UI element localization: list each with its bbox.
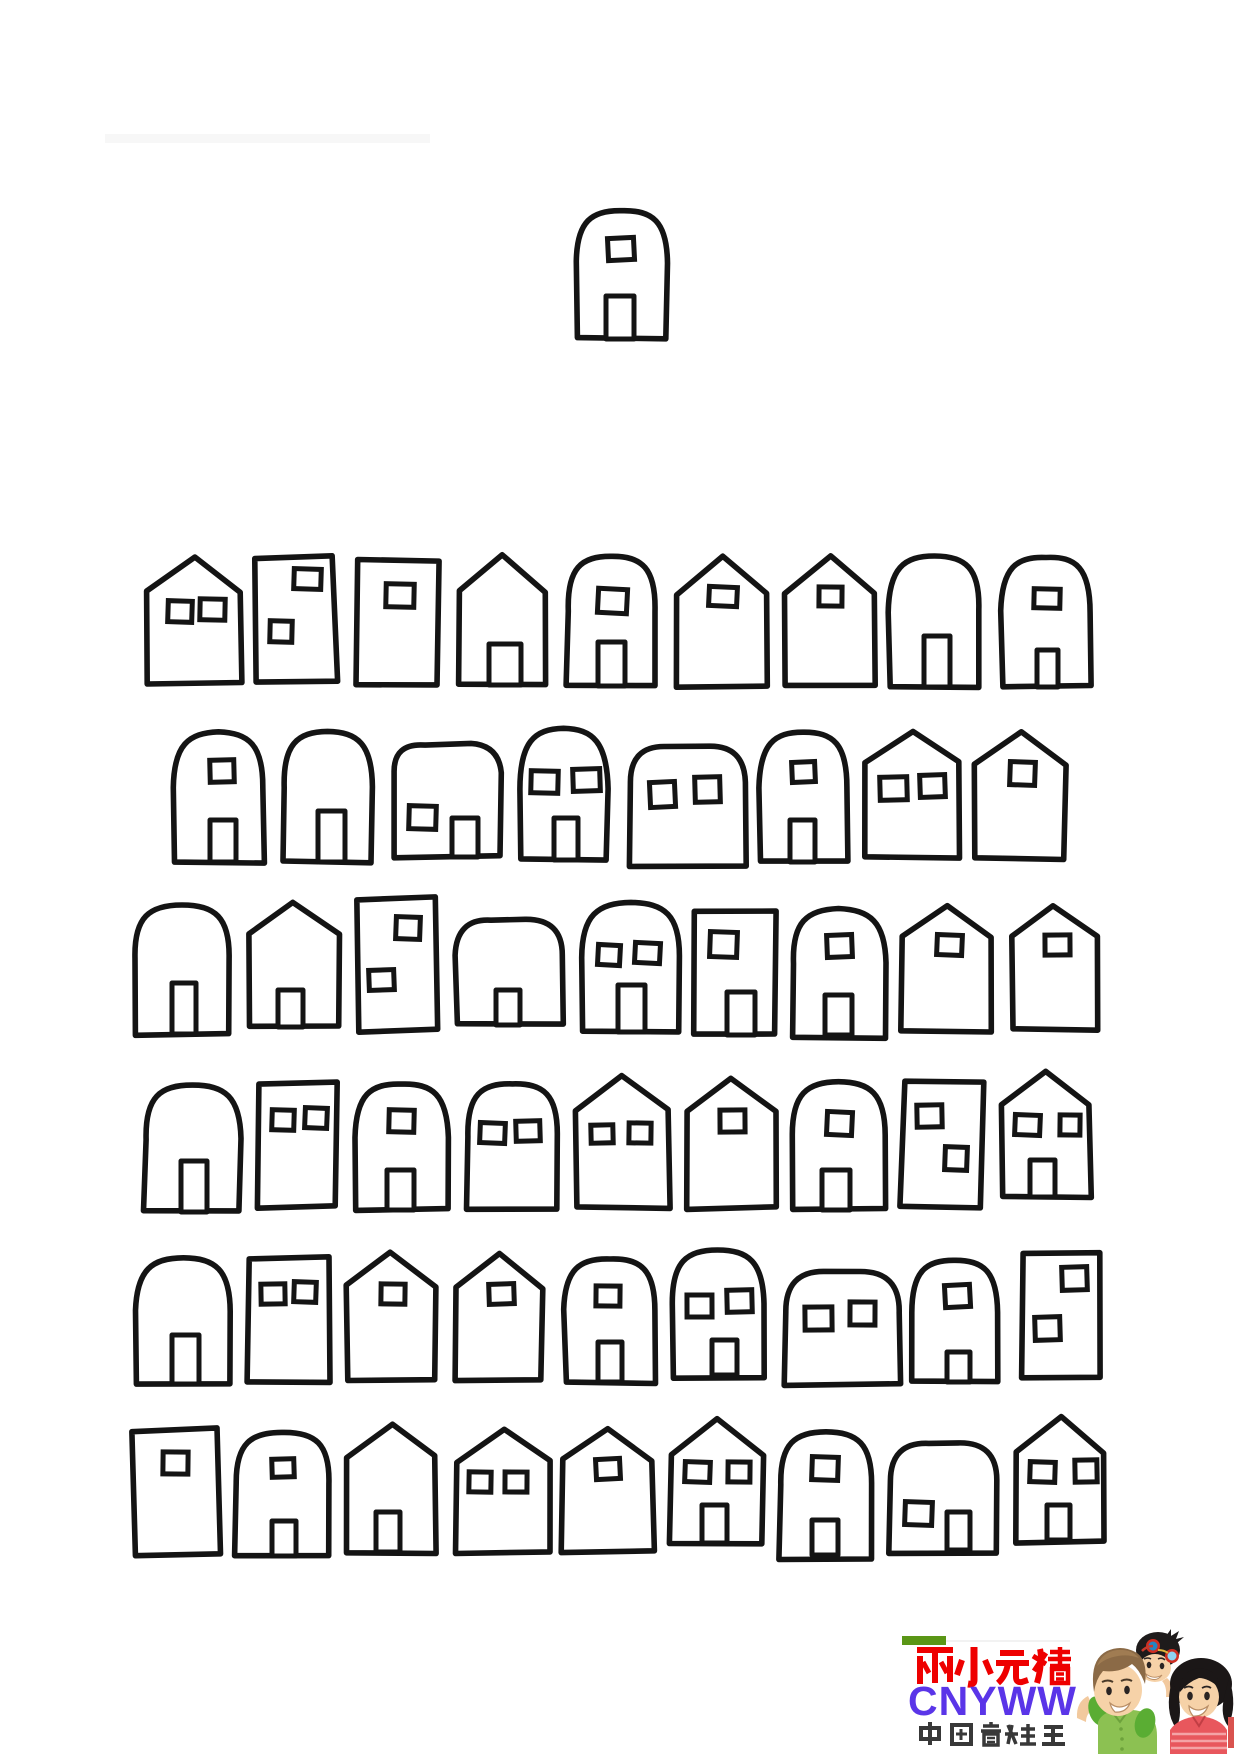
svg-text:CNYWW: CNYWW [908, 1678, 1077, 1724]
